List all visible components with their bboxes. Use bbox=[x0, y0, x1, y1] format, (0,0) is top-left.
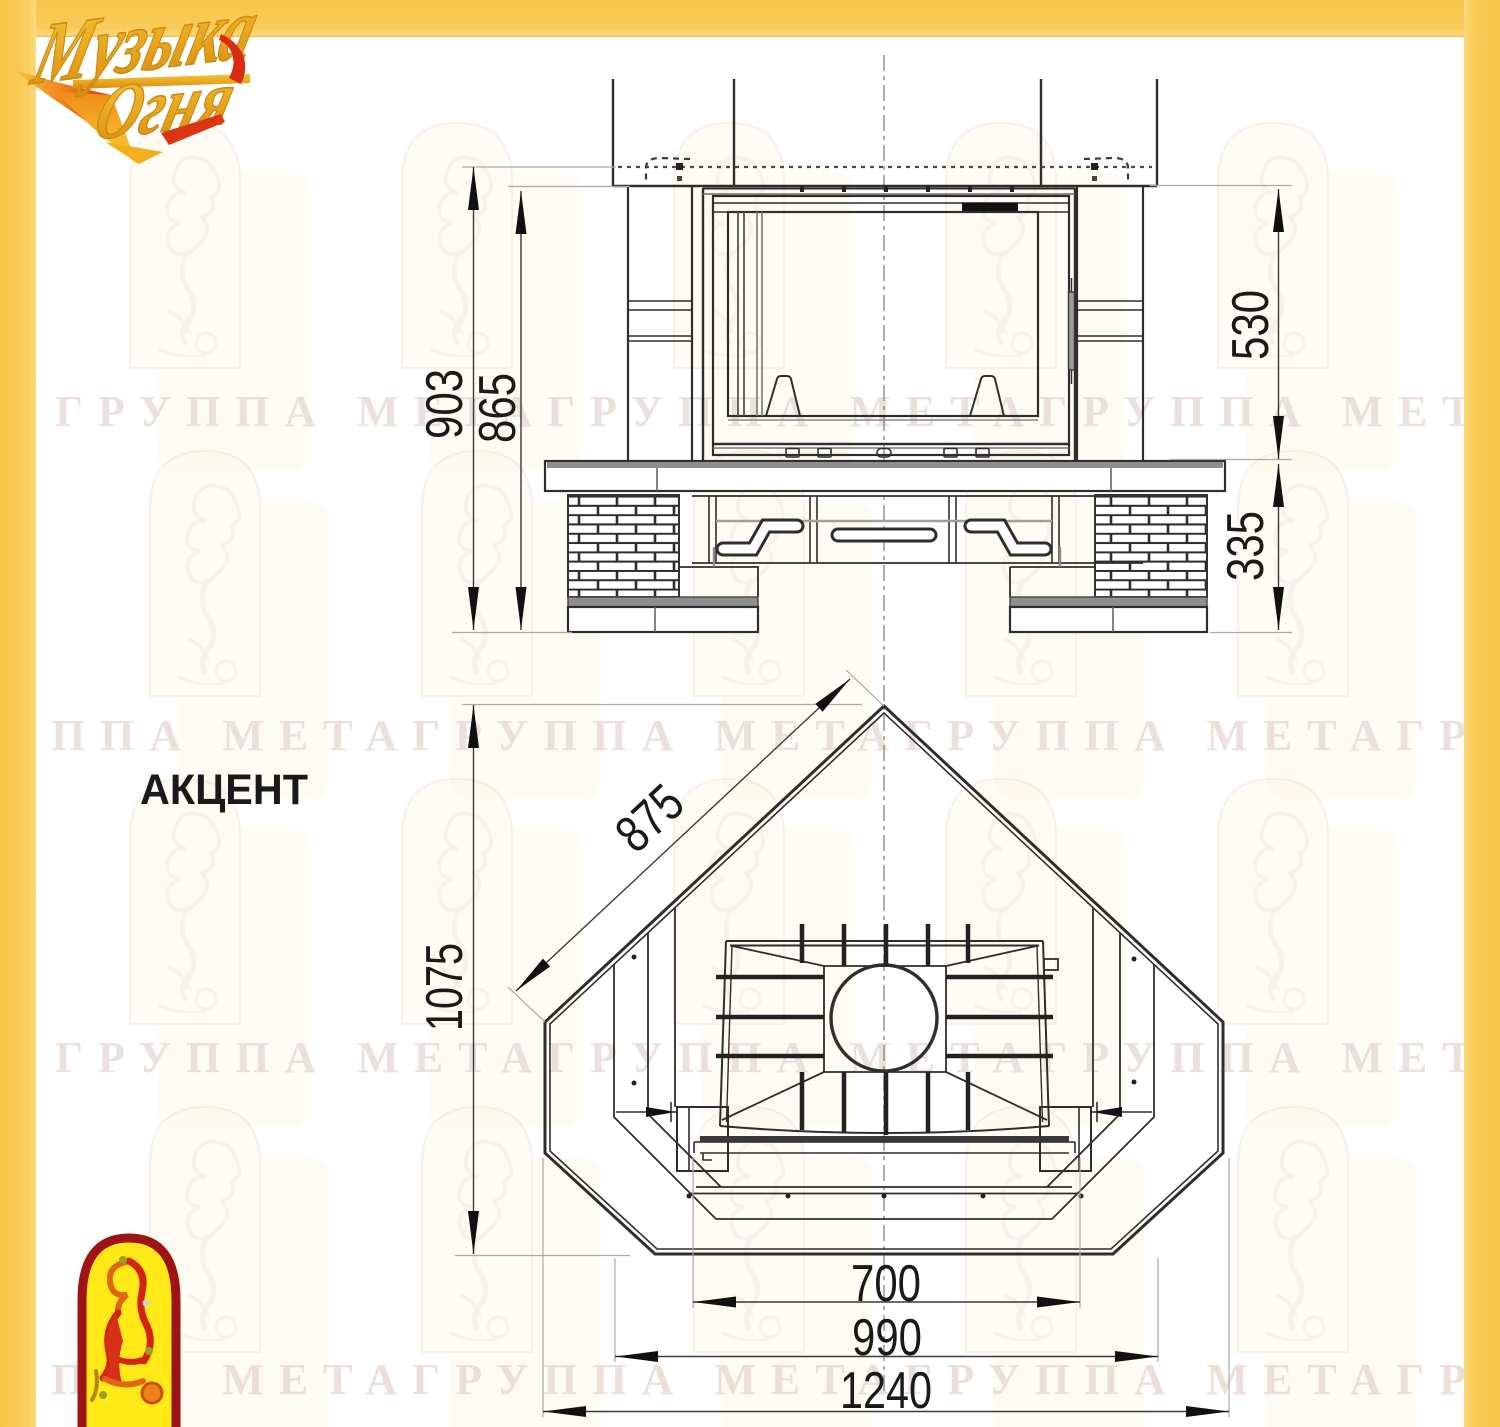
svg-text:АКЦЕНТ: АКЦЕНТ bbox=[140, 766, 308, 814]
svg-text:ГРУППА МЕТАГРУППА МЕТАГРУППА М: ГРУППА МЕТАГРУППА МЕТАГРУППА МЕТАГР bbox=[0, 1355, 1481, 1404]
svg-text:530: 530 bbox=[1222, 290, 1280, 360]
svg-text:335: 335 bbox=[1217, 511, 1275, 581]
svg-text:1075: 1075 bbox=[416, 943, 474, 1031]
svg-text:ГРУППА МЕТАГРУППА МЕТАГРУППА М: ГРУППА МЕТАГРУППА МЕТАГРУППА МЕТАГР bbox=[0, 711, 1481, 760]
svg-text:865: 865 bbox=[469, 373, 527, 443]
svg-text:990: 990 bbox=[852, 1309, 922, 1367]
svg-text:903: 903 bbox=[416, 369, 474, 439]
svg-text:700: 700 bbox=[851, 1255, 921, 1313]
svg-text:1240: 1240 bbox=[840, 1362, 932, 1420]
svg-text:ГРУППА МЕТАГРУППА МЕТАГРУППА М: ГРУППА МЕТАГРУППА МЕТАГРУППА МЕТА bbox=[55, 387, 1500, 436]
